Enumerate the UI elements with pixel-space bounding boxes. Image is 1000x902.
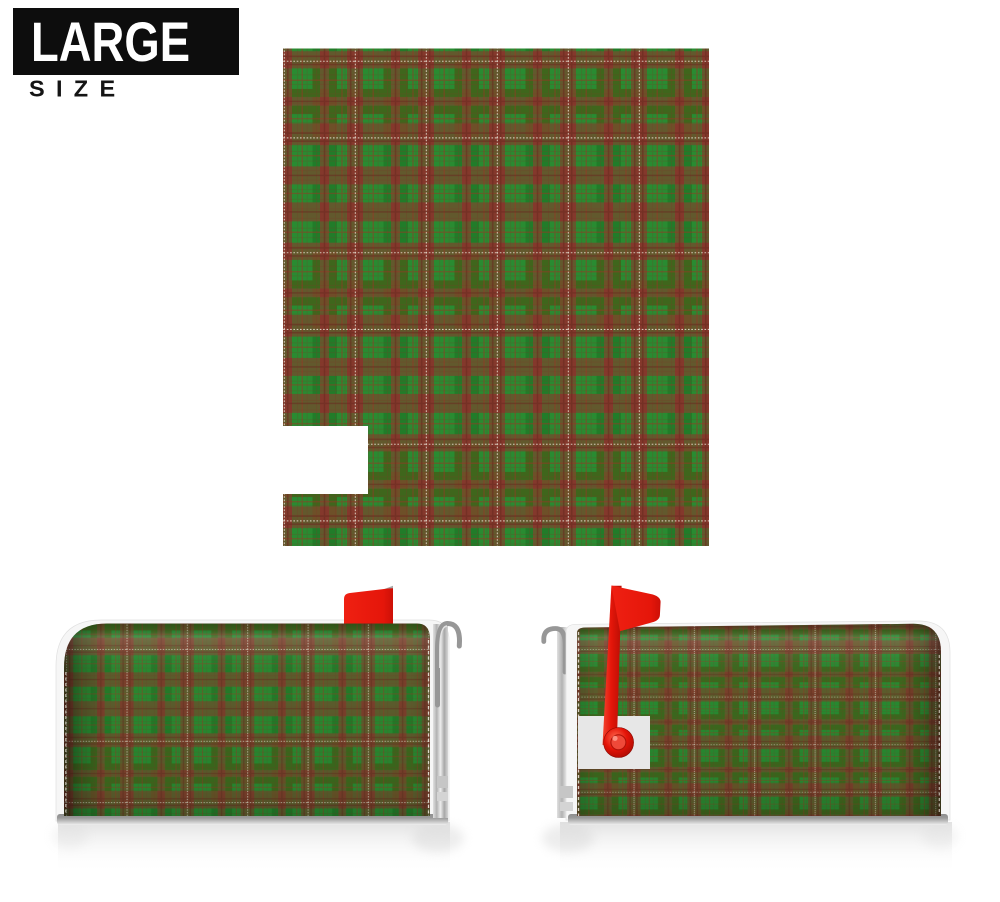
svg-text:LARGE: LARGE <box>31 11 190 73</box>
svg-text:SIZE: SIZE <box>29 76 126 102</box>
